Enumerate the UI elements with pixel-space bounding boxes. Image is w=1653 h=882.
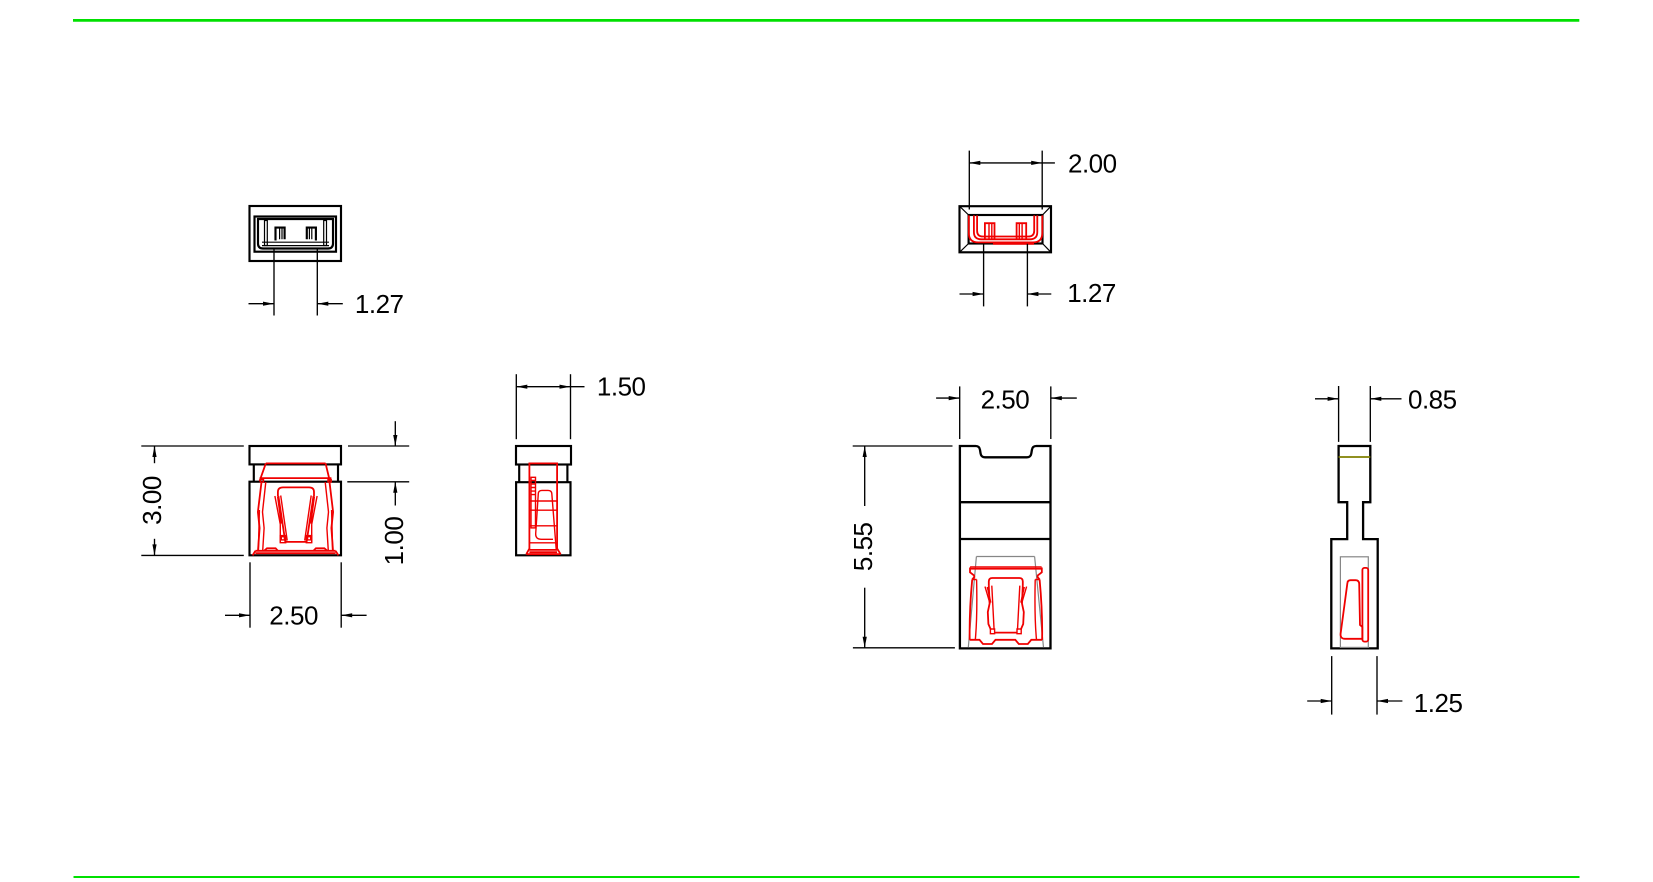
svg-text:1.27: 1.27 xyxy=(355,289,404,319)
svg-text:2.50: 2.50 xyxy=(269,601,318,631)
svg-text:2.00: 2.00 xyxy=(1068,149,1117,179)
svg-text:0.85: 0.85 xyxy=(1408,385,1457,415)
svg-text:3.00: 3.00 xyxy=(137,476,167,525)
svg-text:1.25: 1.25 xyxy=(1414,688,1463,718)
svg-text:2.50: 2.50 xyxy=(981,385,1030,415)
svg-text:1.50: 1.50 xyxy=(597,372,646,402)
svg-text:5.55: 5.55 xyxy=(848,522,878,571)
svg-text:1.00: 1.00 xyxy=(379,517,409,566)
svg-text:1.27: 1.27 xyxy=(1067,278,1116,308)
